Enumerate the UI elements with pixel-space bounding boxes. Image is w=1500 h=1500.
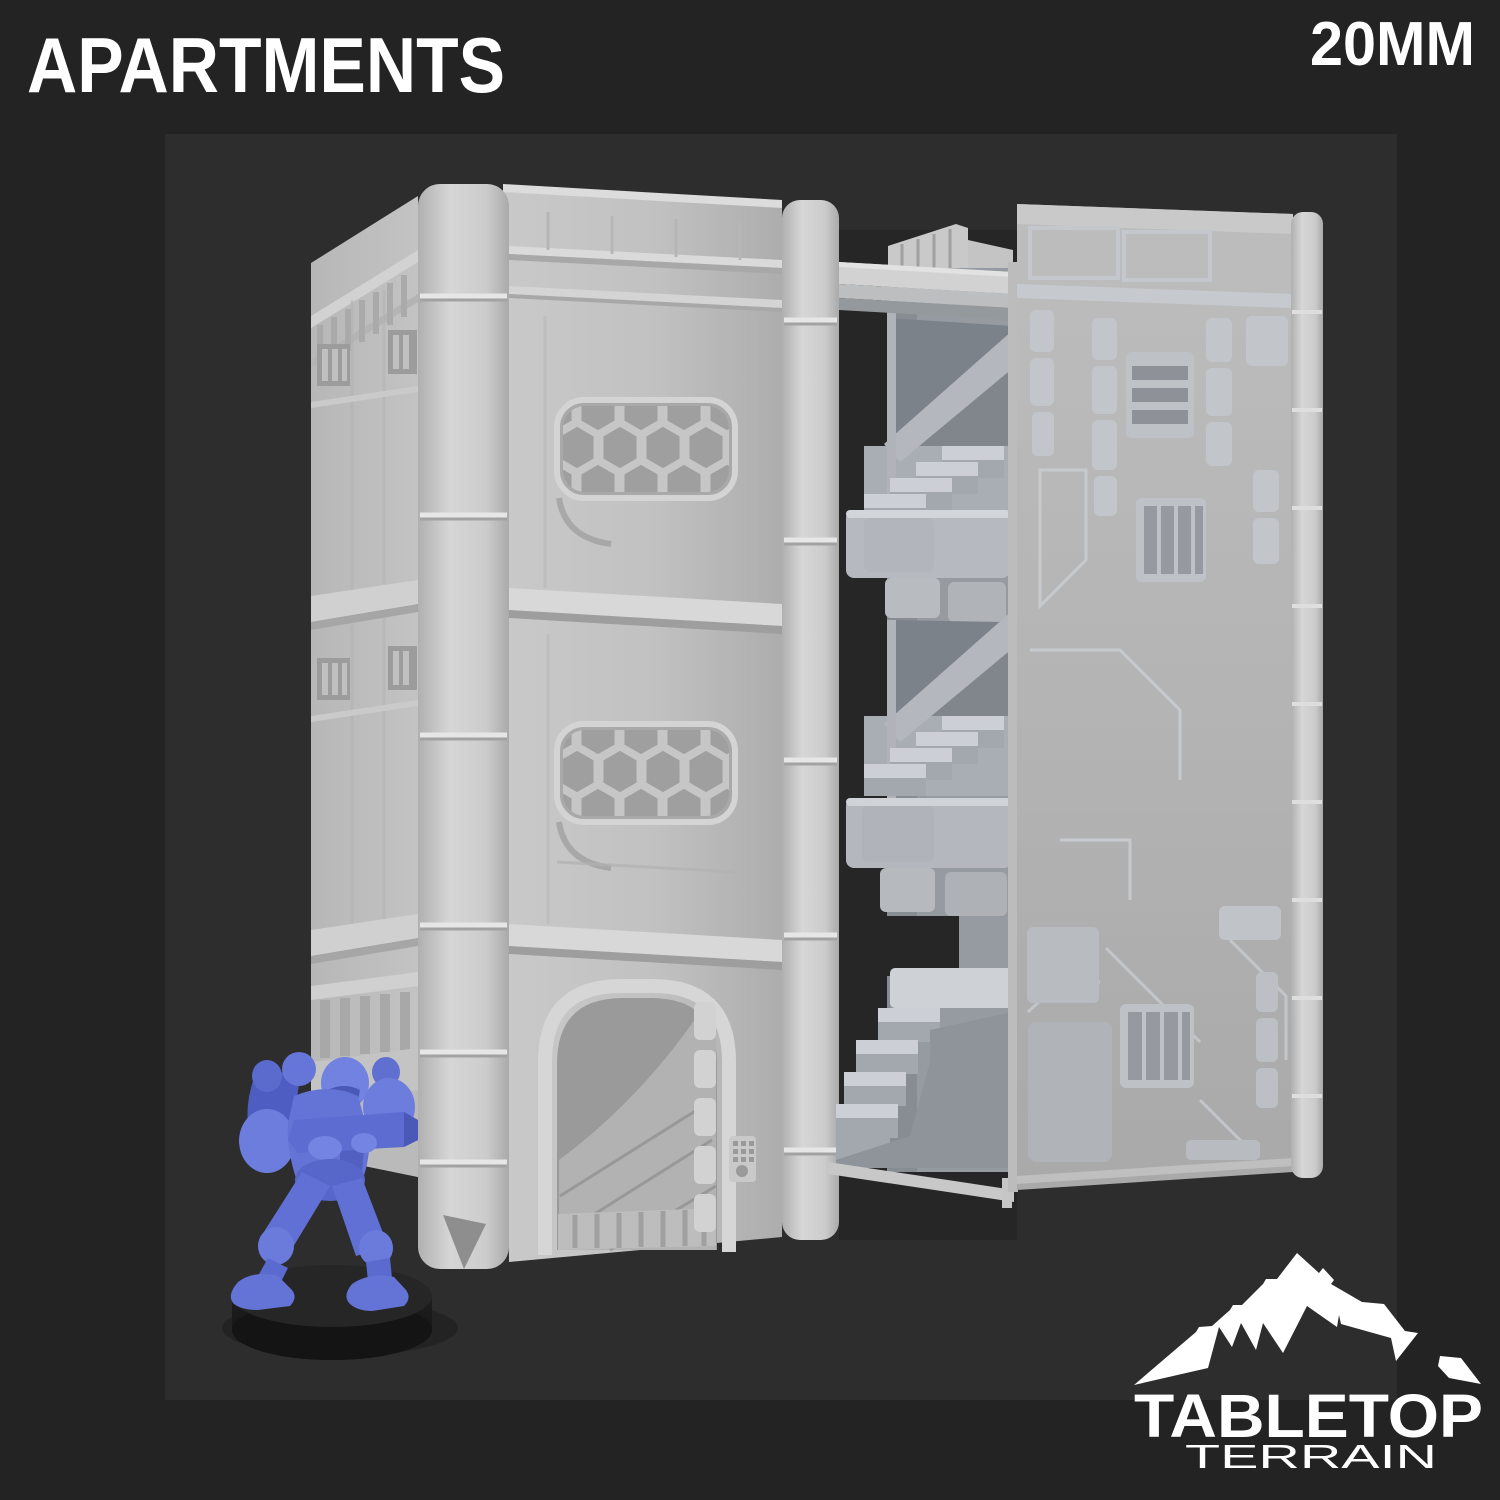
svg-text:TERRAIN: TERRAIN <box>1185 1438 1437 1475</box>
svg-text:20MM: 20MM <box>1310 10 1475 79</box>
svg-text:APARTMENTS: APARTMENTS <box>27 21 505 109</box>
